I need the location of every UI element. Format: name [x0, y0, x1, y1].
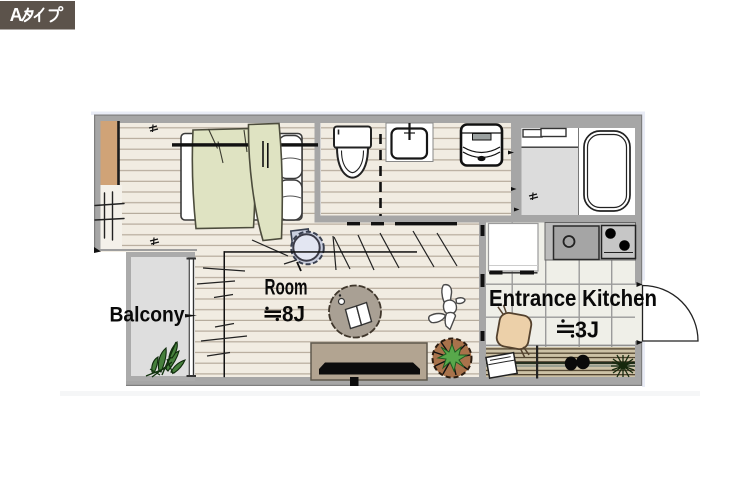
svg-text:Entrance Kitchen: Entrance Kitchen	[489, 285, 657, 311]
svg-text:3J: 3J	[575, 317, 599, 343]
svg-text:A: A	[10, 5, 23, 25]
svg-text:Room: Room	[265, 275, 308, 300]
svg-text:8J: 8J	[282, 302, 305, 327]
svg-text:Balcony: Balcony	[110, 304, 185, 327]
